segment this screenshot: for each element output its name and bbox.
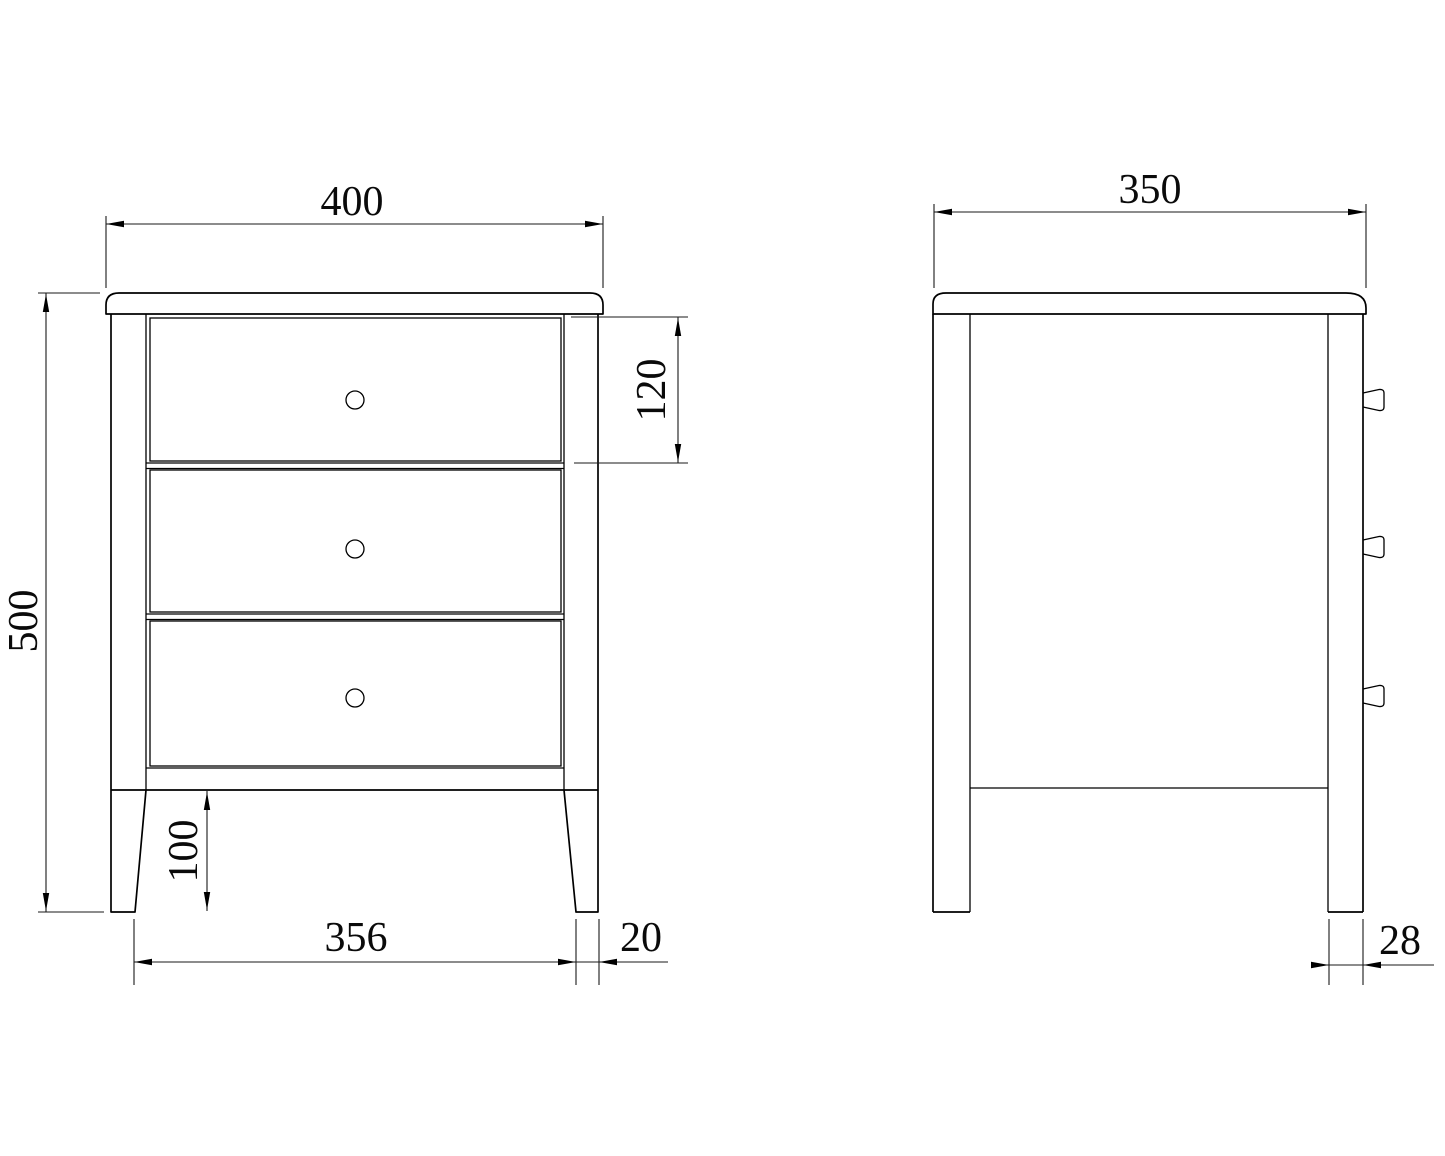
- drawer-knob-1: [346, 391, 364, 409]
- dim-20-label: 20: [620, 915, 662, 961]
- dim-400-arrow-left: [106, 221, 124, 227]
- front-right-leg: [564, 790, 598, 912]
- drawer-knob-3: [346, 689, 364, 707]
- dim-20-arrow: [599, 959, 617, 965]
- side-knob-1: [1363, 389, 1384, 410]
- dim-leg-height: 100: [161, 791, 210, 911]
- front-left-leg: [111, 790, 146, 912]
- technical-drawing-canvas: 400 500 120 100 356 20: [0, 0, 1445, 1156]
- drawer-front-3: [150, 621, 561, 766]
- dim-500-label: 500: [1, 590, 47, 653]
- drawer-front-2: [150, 470, 561, 612]
- dim-front-top-width: 400: [106, 179, 603, 288]
- dim-side-depth: 350: [934, 167, 1366, 288]
- side-view: [933, 293, 1384, 912]
- dim-356-arrow-left: [134, 959, 152, 965]
- dim-356-arrow-right: [558, 959, 576, 965]
- side-top-panel: [933, 293, 1366, 314]
- dim-100-arrow-top: [204, 792, 210, 810]
- dim-28-label: 28: [1379, 918, 1421, 964]
- drawer-knob-2: [346, 540, 364, 558]
- dim-side-leg-depth: 28: [1311, 918, 1434, 985]
- dim-28-arrow-left: [1311, 962, 1329, 968]
- dim-120-arrow-top: [675, 318, 681, 336]
- drawer-front-1: [150, 318, 561, 461]
- dim-leg-span: 356: [134, 915, 576, 985]
- dim-350-label: 350: [1119, 167, 1182, 213]
- dim-100-label: 100: [161, 820, 207, 883]
- dim-drawer-height: 120: [571, 317, 688, 463]
- side-knob-2: [1363, 536, 1384, 557]
- dim-front-leg-width: 20: [576, 915, 668, 985]
- dim-overall-height: 500: [1, 293, 104, 912]
- dim-500-arrow-top: [43, 294, 49, 312]
- dim-400-label: 400: [321, 179, 384, 225]
- dim-120-arrow-bottom: [675, 444, 681, 462]
- front-view: [106, 293, 603, 912]
- dim-120-label: 120: [629, 359, 675, 422]
- dim-350-arrow-right: [1348, 209, 1366, 215]
- side-knob-3: [1363, 685, 1384, 706]
- dim-100-arrow-bottom: [204, 892, 210, 910]
- dim-350-arrow-left: [934, 209, 952, 215]
- dim-400-arrow-right: [585, 221, 603, 227]
- dim-356-label: 356: [325, 915, 388, 961]
- dim-500-arrow-bottom: [43, 893, 49, 911]
- front-top-panel: [106, 293, 603, 314]
